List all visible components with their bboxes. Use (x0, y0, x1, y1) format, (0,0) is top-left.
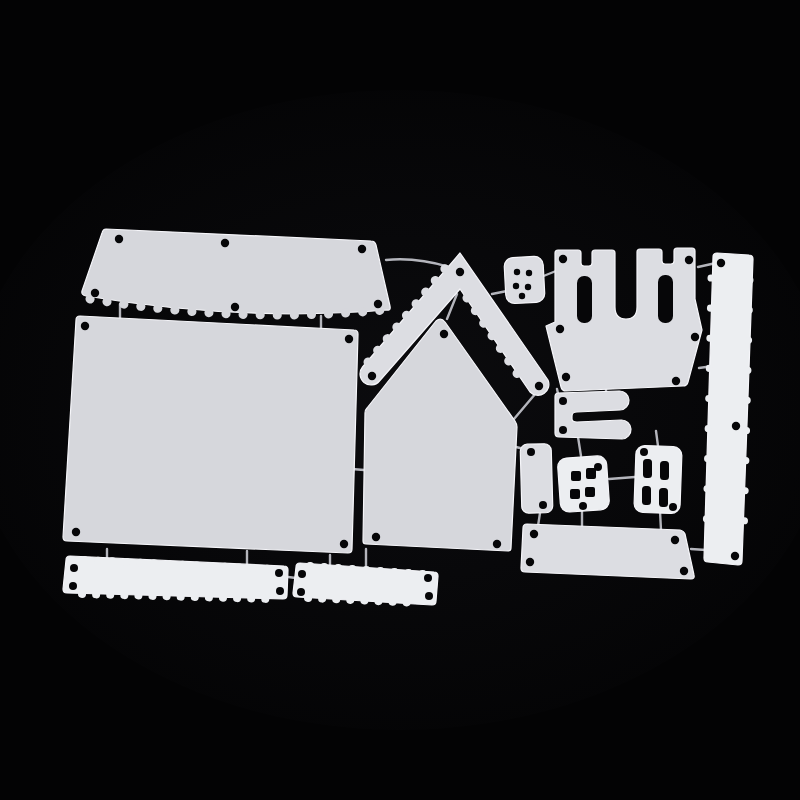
punched-pane (643, 459, 652, 478)
punched-hole (539, 501, 547, 509)
punched-hole (669, 503, 677, 511)
punched-hole (556, 325, 564, 333)
punched-hole (440, 330, 448, 338)
punched-hole (519, 293, 525, 299)
punched-hole (91, 289, 99, 297)
punched-pane (586, 468, 596, 479)
punched-hole (525, 284, 531, 290)
punched-hole (559, 255, 567, 263)
punched-hole (275, 569, 283, 577)
punched-hole (70, 564, 78, 572)
punched-hole (372, 533, 380, 541)
punched-hole (345, 335, 353, 343)
punched-pane (642, 486, 651, 505)
punched-hole (514, 269, 520, 275)
punched-hole (672, 377, 680, 385)
punched-hole (680, 567, 688, 575)
punched-hole (276, 587, 284, 595)
punched-pane (570, 489, 580, 499)
die-door-small (520, 444, 553, 514)
punched-pane (571, 471, 581, 481)
punched-hole (298, 570, 306, 578)
punched-hole (221, 239, 229, 247)
punched-hole (717, 259, 725, 267)
punched-hole (69, 582, 77, 590)
punched-hole (368, 372, 376, 380)
punched-hole (530, 530, 538, 538)
punched-hole (456, 268, 464, 276)
die-roof-scalloped-panel (82, 229, 390, 314)
punched-hole (640, 448, 648, 456)
punched-hole (424, 574, 432, 582)
punched-hole (671, 536, 679, 544)
punched-hole (562, 373, 570, 381)
punched-hole (340, 540, 348, 548)
punched-hole (579, 502, 587, 510)
punched-hole (559, 426, 567, 434)
punched-hole (493, 540, 501, 548)
punched-hole (231, 303, 239, 311)
punched-slot (658, 275, 673, 323)
die-base-rectangle (521, 524, 694, 579)
punched-hole (559, 397, 567, 405)
punched-hole (374, 300, 382, 308)
punched-pane (659, 488, 668, 507)
photo-canvas (0, 0, 800, 800)
punched-hole (731, 552, 739, 560)
punched-slot (577, 276, 592, 323)
punched-hole (685, 256, 693, 264)
punched-hole (115, 235, 123, 243)
punched-pane (585, 487, 595, 497)
product-photo (0, 0, 800, 800)
punched-hole (81, 322, 89, 330)
punched-hole (513, 283, 519, 289)
punched-hole (526, 270, 532, 276)
punched-hole (691, 333, 699, 341)
punched-hole (527, 448, 535, 456)
punched-pane (660, 461, 669, 480)
punched-hole (425, 592, 433, 600)
punched-hole (732, 422, 740, 430)
punched-hole (358, 245, 366, 253)
punched-hole (526, 558, 534, 566)
punched-hole (72, 528, 80, 536)
punched-hole (535, 382, 543, 390)
punched-hole (297, 588, 305, 596)
die-wall-rectangle-panel (63, 316, 358, 553)
